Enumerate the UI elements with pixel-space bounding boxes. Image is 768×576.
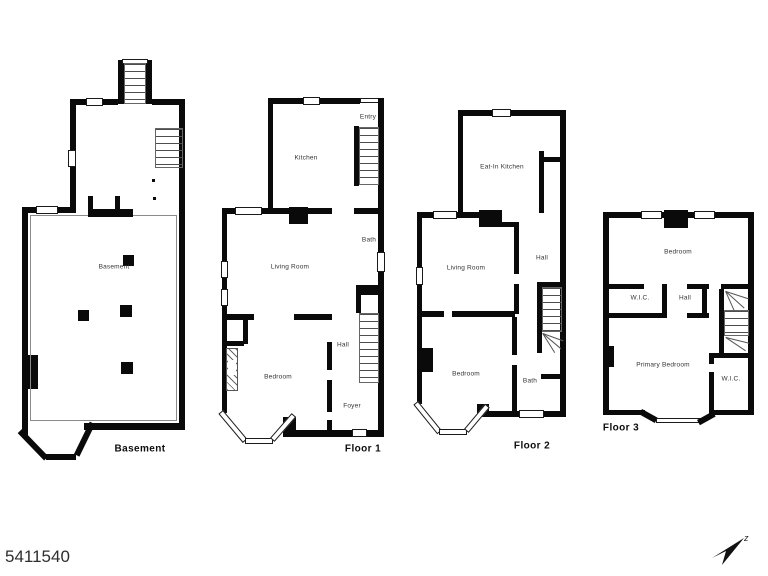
wall: [603, 284, 644, 289]
floor-title: Floor 3: [603, 423, 639, 434]
stairs-icon: [724, 310, 749, 336]
room-label: W.I.C.: [631, 295, 650, 302]
wall: [712, 410, 754, 415]
wall: [687, 313, 709, 318]
wall: [709, 353, 714, 364]
floor3-plan: Bedroom W.I.C. Hall Primary Bedroom W.I.…: [0, 0, 768, 576]
chimney: [664, 210, 688, 228]
wall: [639, 409, 658, 423]
window: [694, 211, 715, 219]
floorplan-sheet: Basement Basement: [0, 0, 768, 576]
north-arrow-label: z: [744, 533, 749, 543]
room-label: Bedroom: [664, 249, 692, 256]
wall: [697, 411, 716, 425]
room-label: W.I.C.: [722, 376, 741, 383]
window: [641, 211, 662, 219]
wall: [603, 313, 667, 318]
wall: [721, 284, 754, 289]
listing-id: 5411540: [5, 547, 70, 567]
room-label: Primary Bedroom: [636, 362, 690, 369]
bay-window: [656, 418, 703, 423]
wall: [709, 353, 750, 358]
room-label: Hall: [679, 295, 691, 302]
wall: [709, 372, 714, 415]
chimney: [603, 346, 614, 367]
